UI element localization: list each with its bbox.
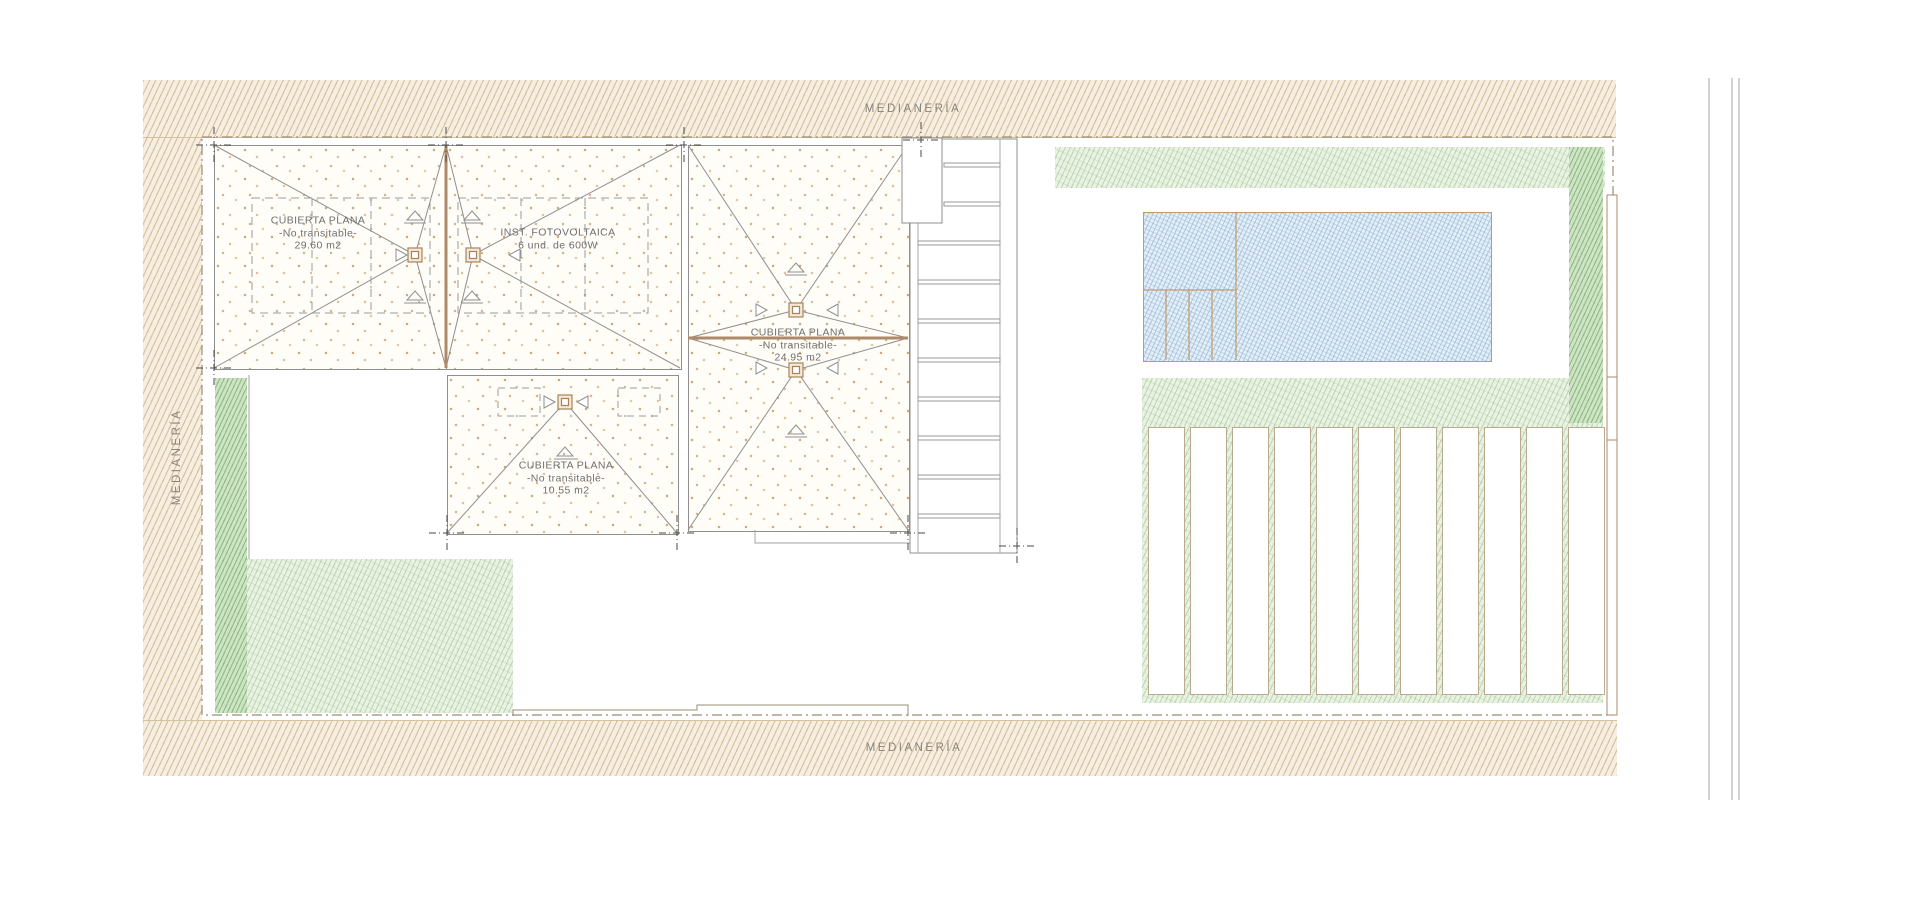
street-kerb-lines bbox=[1709, 78, 1739, 800]
roof-c-sub: -No transitable- bbox=[751, 339, 846, 352]
roof-c-area: 24.95 m2 bbox=[751, 351, 846, 364]
plan-linework bbox=[0, 0, 1920, 920]
roof-plan-drawing: MEDIANERÍA MEDIANERÍA MEDIANERÍA CUBIERT… bbox=[0, 0, 1920, 920]
roof-c-name: CUBIERTA PLANA bbox=[751, 326, 846, 339]
chimney-box bbox=[902, 138, 942, 223]
roof-b-label: INST. FOTOVOLTAICA 6 und. de 600W bbox=[500, 227, 615, 252]
party-wall-label-top: MEDIANERÍA bbox=[865, 103, 962, 115]
roof-d-name: CUBIERTA PLANA bbox=[519, 459, 614, 472]
roof-a-label: CUBIERTA PLANA -No transitable- 29.60 m2 bbox=[271, 214, 366, 252]
party-wall-label-left: MEDIANERÍA bbox=[171, 409, 183, 506]
terrace-steps bbox=[513, 705, 908, 716]
solar-panel-zone-b bbox=[458, 198, 648, 313]
terrace-outline bbox=[249, 375, 1018, 559]
right-boundary-wall bbox=[1607, 195, 1617, 715]
roof-d-sub: -No transitable- bbox=[519, 472, 614, 485]
roof-a-area: 29.60 m2 bbox=[271, 239, 366, 252]
pool-steps bbox=[1143, 212, 1236, 360]
roof-b-name: INST. FOTOVOLTAICA bbox=[500, 227, 615, 240]
roof-c-label: CUBIERTA PLANA -No transitable- 24.95 m2 bbox=[751, 326, 846, 364]
roof-b-valleys bbox=[446, 145, 680, 368]
roof-d-label: CUBIERTA PLANA -No transitable- 10.55 m2 bbox=[519, 459, 614, 497]
roof-b-sub: 6 und. de 600W bbox=[500, 239, 615, 252]
roof-a-sub: -No transitable- bbox=[271, 227, 366, 240]
roof-d-area: 10.55 m2 bbox=[519, 484, 614, 497]
roof-drains bbox=[408, 248, 803, 409]
party-wall-label-bottom: MEDIANERÍA bbox=[866, 742, 963, 754]
roof-a-name: CUBIERTA PLANA bbox=[271, 214, 366, 227]
plot-boundary-line bbox=[202, 137, 1613, 715]
